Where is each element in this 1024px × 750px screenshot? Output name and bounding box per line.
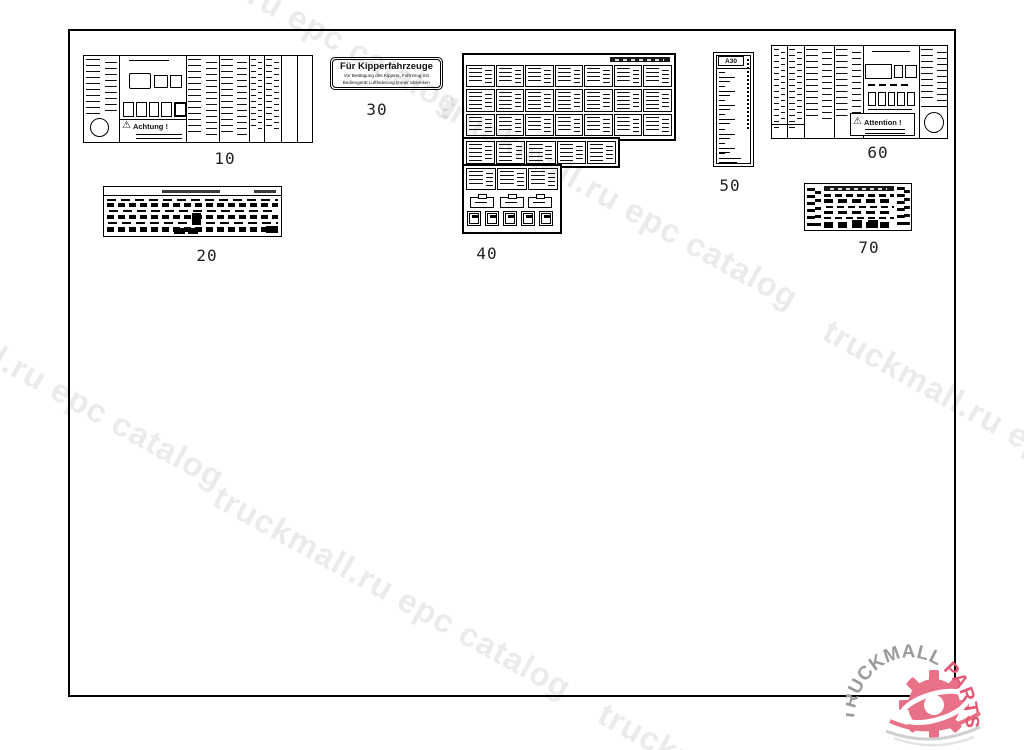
label-cell: [526, 141, 555, 164]
switch-symbol-box: [170, 75, 182, 88]
warning-label: Achtung !: [133, 122, 168, 131]
micro-text-group: [719, 100, 745, 112]
label-cell: [555, 65, 584, 87]
item-number-40[interactable]: 40: [476, 244, 497, 263]
micro-text-row: [107, 203, 278, 207]
micro-text-group: [719, 153, 745, 165]
header-text-bar: [254, 190, 276, 193]
label-cell: [497, 168, 527, 190]
catalog-page: truckmall.ru epc catalog truckmall.ru ep…: [0, 0, 1024, 750]
micro-text-column: [921, 49, 947, 101]
rule: [104, 195, 281, 196]
micro-text-column: [789, 49, 802, 129]
label-cell: [466, 141, 495, 164]
label-inner-border: Für Kipperfahrzeuge Vor Betätigung des K…: [332, 59, 441, 88]
divider: [804, 46, 805, 138]
switch-symbol-box: [129, 73, 151, 89]
label-cell: [496, 89, 525, 111]
label-cell: [557, 141, 586, 164]
fuse-symbol: [467, 211, 481, 226]
divider: [119, 56, 120, 142]
text-block: [174, 228, 185, 234]
fuse-symbol: [485, 211, 499, 226]
micro-text-column: [836, 49, 861, 121]
micro-text-group: [719, 129, 745, 141]
text-block: [266, 226, 278, 233]
label-cell: [643, 65, 672, 87]
label-cell: [643, 89, 672, 111]
label-cell: [584, 65, 613, 87]
label-cell: [466, 65, 495, 87]
truckmall-parts-logo: TRUCKMALL PARTS: [846, 643, 1024, 750]
micro-text-group: [719, 72, 745, 84]
switch-symbol-box: [905, 65, 917, 78]
label-cell: [555, 114, 584, 136]
rule: [865, 133, 905, 134]
label-cell: [525, 89, 554, 111]
label-cell: [466, 89, 495, 111]
symbol-box: [907, 92, 915, 106]
label-cell: [643, 114, 672, 136]
warning-row: ⚠ Attention !: [853, 117, 901, 127]
symbol-box-row: [123, 102, 187, 117]
symbol-box: [174, 102, 187, 117]
divider: [186, 56, 187, 142]
rule: [717, 68, 750, 69]
divider: [264, 56, 265, 142]
label-cell: [496, 141, 525, 164]
symbol-box: [161, 102, 172, 117]
label-cell: [584, 89, 613, 111]
item-number-10[interactable]: 10: [214, 149, 235, 168]
tipper-label-title: Für Kipperfahrzeuge: [340, 61, 433, 72]
label-cell: [587, 141, 616, 164]
fuse-panel-bottom: [462, 164, 562, 234]
rule: [868, 109, 912, 110]
divider: [281, 56, 282, 142]
rule: [921, 106, 947, 107]
label-plate-60: ⚠ Attention !: [771, 45, 948, 139]
label-cell: [466, 114, 495, 136]
symbol-box: [888, 92, 896, 106]
micro-text-row: [824, 217, 894, 219]
divider: [919, 46, 920, 138]
header-text-bar: [162, 190, 220, 193]
text-block: [188, 228, 198, 234]
text-block: [868, 220, 878, 228]
module-code: A30: [718, 56, 744, 66]
label-cell: [584, 114, 613, 136]
tipper-label-line1: Vor Betätigung des Kippers, Fahrzeug mit: [344, 73, 429, 79]
warning-triangle-icon: ⚠: [122, 121, 131, 131]
label-cell: [528, 168, 558, 190]
rule: [129, 60, 169, 61]
rule: [865, 129, 905, 130]
label-cell: [614, 65, 643, 87]
hole-mark: [924, 112, 944, 133]
micro-text-column: [188, 59, 217, 137]
symbol-box: [123, 102, 134, 117]
rule: [772, 124, 804, 125]
fuse-symbol: [521, 211, 535, 226]
symbol-box: [878, 92, 886, 106]
relay-symbol: [500, 197, 524, 208]
relay-symbol: [528, 197, 552, 208]
micro-text-row: [826, 206, 894, 208]
label-plate-40: [462, 53, 672, 230]
micro-text-column: [807, 188, 821, 228]
fuse-symbol: [503, 211, 517, 226]
micro-text-group: [719, 86, 745, 98]
label-cell: [496, 65, 525, 87]
symbol-box: [149, 102, 160, 117]
micro-text-column: [806, 49, 832, 121]
micro-text-row: [824, 194, 894, 197]
item-number-30[interactable]: 30: [366, 100, 387, 119]
item-number-60[interactable]: 60: [867, 143, 888, 162]
micro-text-row: [868, 84, 912, 86]
label-cell: [466, 168, 496, 190]
micro-text-column: [774, 49, 785, 129]
rule: [136, 134, 182, 135]
text-block: [852, 220, 862, 228]
rule: [136, 138, 182, 139]
attention-box: ⚠ Attention !: [850, 113, 915, 136]
micro-text-column: [897, 187, 910, 229]
divider: [249, 56, 250, 142]
text-block: [192, 213, 201, 225]
switch-symbol-box: [865, 64, 892, 79]
switch-symbol-box: [154, 75, 168, 88]
divider: [297, 56, 298, 142]
relay-symbol: [470, 197, 494, 208]
switch-symbol-box: [894, 65, 903, 78]
rule: [872, 51, 910, 52]
warning-label: Attention !: [864, 118, 902, 127]
fuse-symbol: [539, 211, 553, 226]
label-cell: [555, 89, 584, 111]
warning-triangle-icon: ⚠: [853, 117, 862, 127]
micro-text-column: [221, 59, 247, 137]
label-cell: [525, 65, 554, 87]
micro-text-row: [107, 199, 278, 201]
part-number-bar: [610, 57, 670, 62]
symbol-box-row: [868, 92, 915, 106]
fuse-panel-top: [462, 53, 676, 141]
label-cell: [496, 114, 525, 136]
micro-text-group: [719, 114, 745, 126]
micro-text-row: [109, 210, 277, 212]
label-cell: [525, 114, 554, 136]
fuse-symbol-row: [467, 211, 553, 226]
symbol-box: [136, 102, 147, 117]
label-cell: [614, 89, 643, 111]
label-plate-50: A30: [713, 52, 754, 167]
micro-text-column: [86, 59, 117, 115]
label-plate-30: Für Kipperfahrzeuge Vor Betätigung des K…: [330, 57, 443, 90]
symbol-box: [897, 92, 905, 106]
micro-text-row: [824, 199, 894, 203]
hole-mark: [90, 118, 109, 137]
micro-text-column: [266, 59, 279, 129]
micro-text-row: [824, 211, 894, 214]
label-cell: [614, 114, 643, 136]
item-number-70[interactable]: 70: [858, 238, 879, 257]
warning-row: ⚠ Achtung !: [122, 121, 168, 131]
label-plate-70: [804, 183, 912, 231]
item-number-20[interactable]: 20: [196, 246, 217, 265]
vertical-micro-text: [747, 59, 749, 129]
label-plate-10: ⚠ Achtung !: [83, 55, 313, 143]
divider: [219, 56, 220, 142]
cell-grid: [466, 65, 672, 136]
item-number-50[interactable]: 50: [719, 176, 740, 195]
micro-text-column: [251, 59, 262, 129]
header-text-bar: [824, 186, 894, 191]
tipper-label-line2: Bediengerät Luftfederung immer absenken: [343, 80, 430, 86]
label-plate-20: [103, 186, 282, 237]
divider: [834, 46, 835, 138]
symbol-box: [868, 92, 876, 106]
